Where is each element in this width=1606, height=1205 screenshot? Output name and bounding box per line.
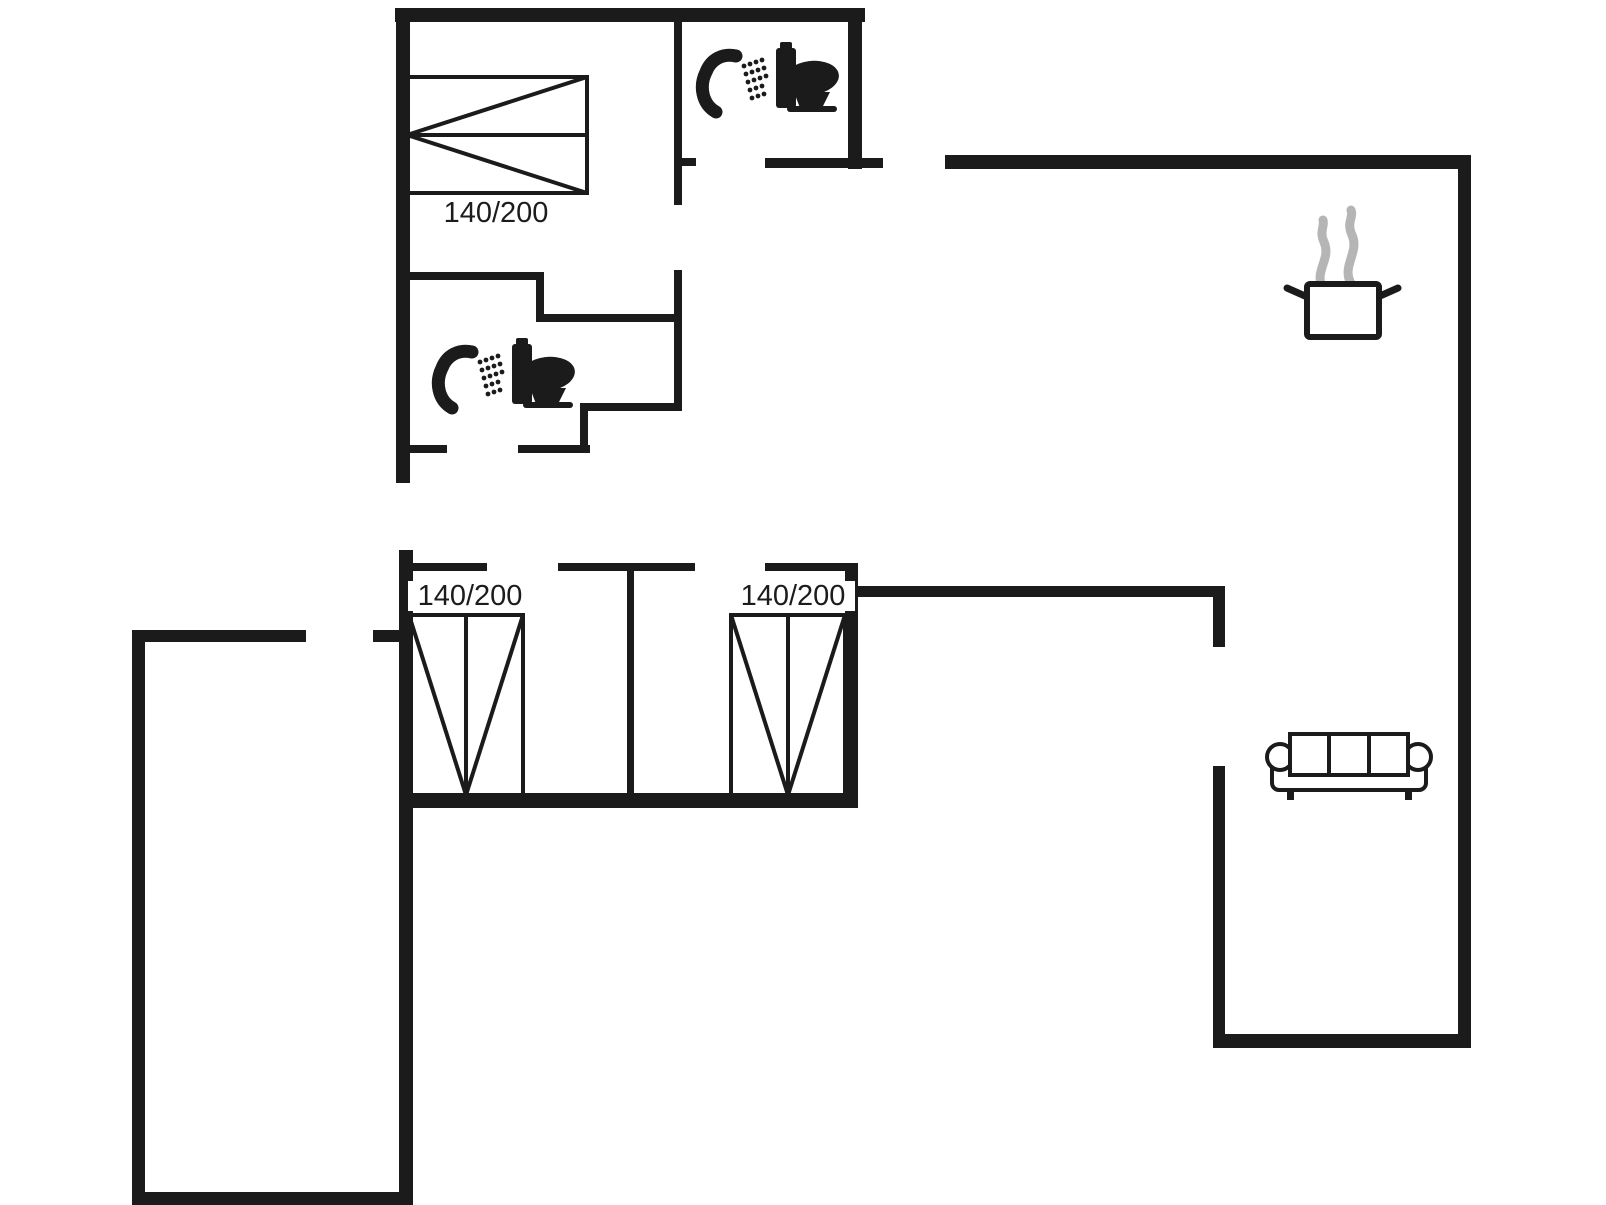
wall-living-left-upper (1213, 586, 1225, 647)
double-bed-icon (405, 75, 589, 195)
wall-wing-bottom (132, 1192, 413, 1205)
cooking-pot-icon (1275, 205, 1410, 345)
wall-bath1-left (674, 8, 682, 205)
wall-bedroom2-top (403, 563, 487, 571)
wall-wing-left (132, 630, 145, 1205)
wall-bath1-door-stub (674, 158, 696, 166)
wall-bath2-inner-h (580, 403, 682, 411)
bed-size-label: 140/200 (731, 581, 855, 611)
steam-icon (1320, 210, 1354, 290)
wall-bedroom3-top (765, 563, 850, 571)
wall-bath2-bottom (518, 445, 590, 453)
wall-bedroom-divider (627, 563, 634, 801)
wall-top (395, 8, 865, 22)
wall-living-right (1458, 155, 1471, 1048)
wall-wing-top (132, 630, 306, 642)
bed-size-label: 140/200 (408, 581, 532, 611)
wall-hall-living-divider (850, 586, 1224, 597)
sofa-icon (1253, 728, 1448, 803)
bathroom1-fixtures (692, 42, 842, 120)
double-bed-icon (407, 613, 525, 797)
wall-bath1-bottom (765, 158, 883, 168)
wall-living-left-lower (1213, 766, 1225, 1048)
bed-size-label: 140/200 (432, 198, 560, 228)
floor-plan: 140/200 140/200 140/200 (0, 0, 1606, 1205)
double-bed-icon (729, 613, 847, 797)
wall-living-top (945, 155, 1471, 169)
wall-living-bottom (1213, 1034, 1471, 1048)
wall-bath1-right (848, 8, 862, 169)
wall-bath2-step-h (536, 314, 682, 322)
bathroom2-fixtures (428, 338, 578, 416)
wall-hall-corridor (674, 270, 682, 411)
wall-bath2-top (403, 272, 543, 280)
wall-bath2-door-stub (403, 445, 447, 453)
